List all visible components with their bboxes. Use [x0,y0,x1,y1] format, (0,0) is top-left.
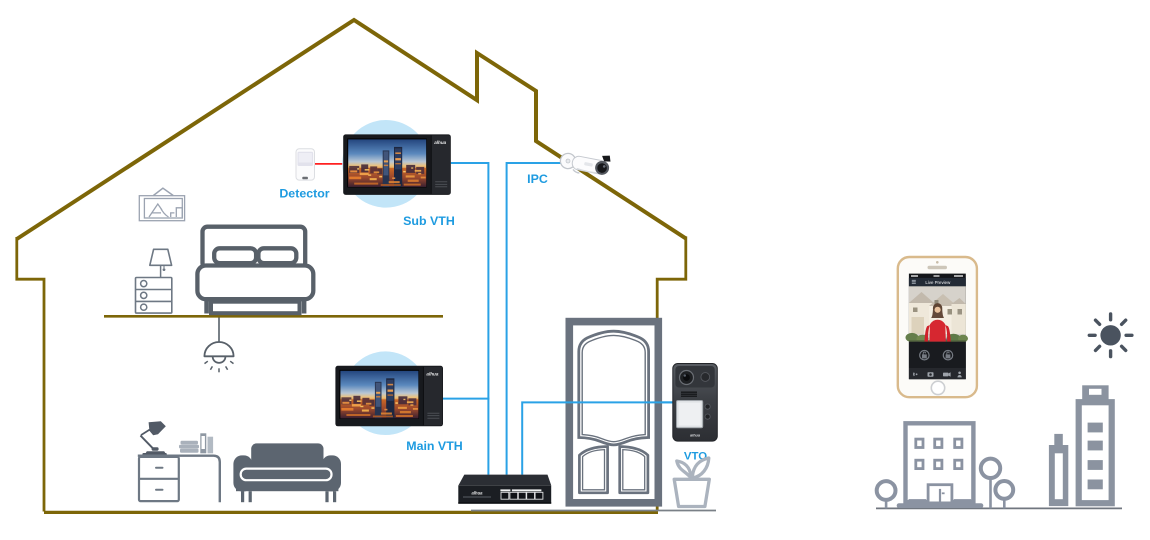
svg-text:IPC: IPC [527,172,548,186]
svg-text:Live Preview: Live Preview [925,280,951,285]
svg-text:alhua: alhua [690,434,700,438]
svg-text:Sub VTH: Sub VTH [403,214,455,228]
svg-text:alhua: alhua [472,491,484,496]
svg-text:Main VTH: Main VTH [406,439,462,453]
svg-text:Detector: Detector [279,187,329,201]
